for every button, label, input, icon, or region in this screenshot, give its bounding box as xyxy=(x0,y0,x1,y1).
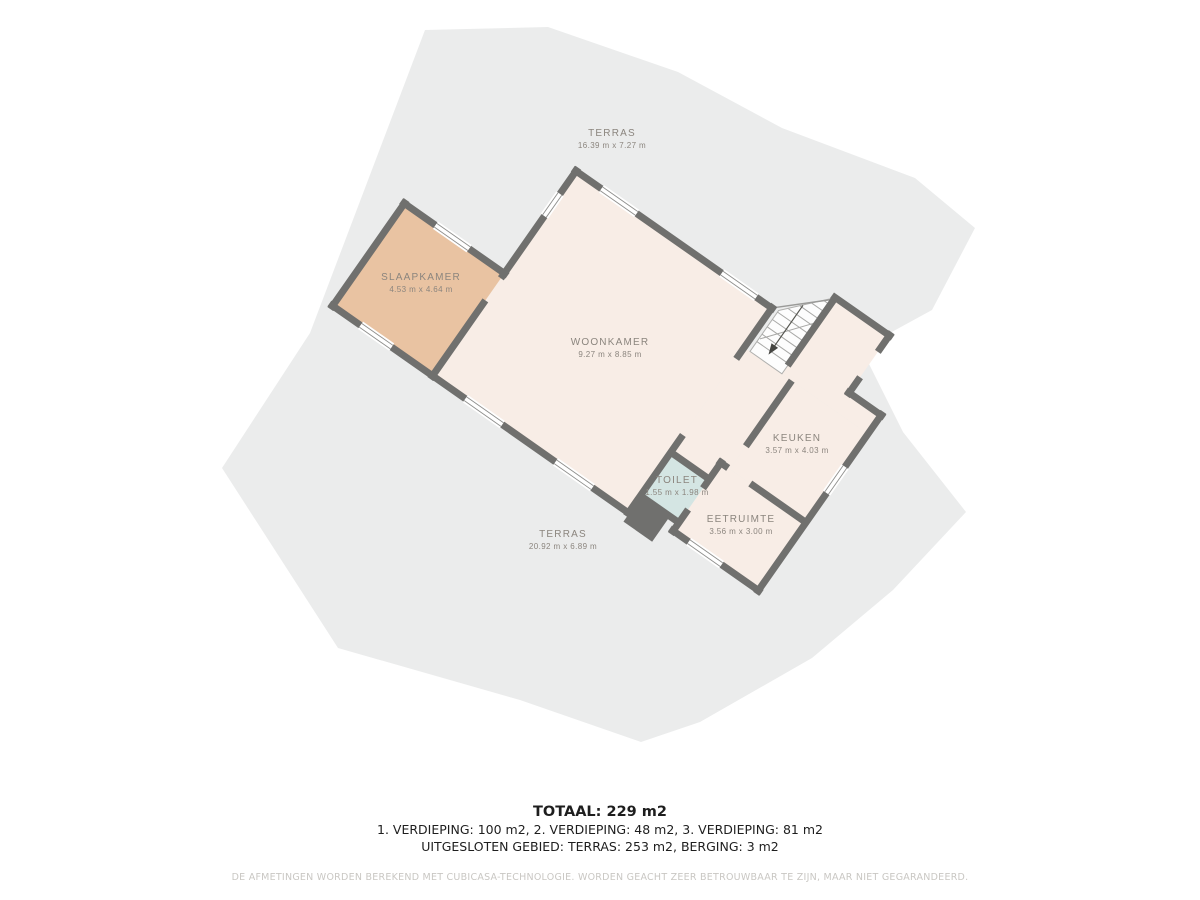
summary-excluded: UITGESLOTEN GEBIED: TERRAS: 253 m2, BERG… xyxy=(0,838,1200,855)
summary-floors: 1. VERDIEPING: 100 m2, 2. VERDIEPING: 48… xyxy=(0,821,1200,838)
floorplan-page: TERRAS 16.39 m x 7.27 m SLAAPKAMER 4.53 … xyxy=(0,0,1200,900)
floorplan-drawing xyxy=(0,0,1200,900)
summary-total: TOTAAL: 229 m2 xyxy=(0,803,1200,821)
area-summary: TOTAAL: 229 m2 1. VERDIEPING: 100 m2, 2.… xyxy=(0,803,1200,855)
disclaimer-text: DE AFMETINGEN WORDEN BEREKEND MET CUBICA… xyxy=(0,872,1200,883)
